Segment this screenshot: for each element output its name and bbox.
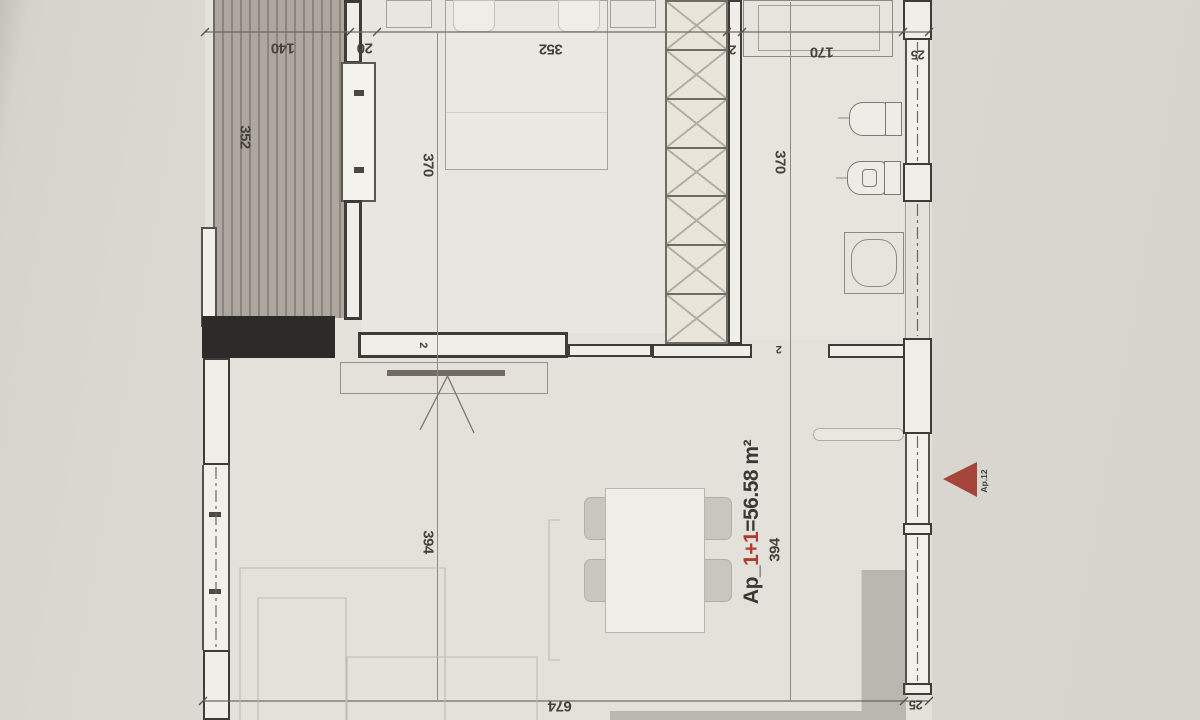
dim-label: 370 bbox=[420, 153, 437, 177]
fixture-lines bbox=[836, 118, 849, 178]
dim-label: 2 bbox=[417, 342, 429, 348]
door-swing-chevron bbox=[420, 376, 474, 433]
dimension-lines bbox=[203, 32, 930, 701]
dim-label: 352 bbox=[237, 125, 254, 149]
area-prefix: Ap_ bbox=[740, 566, 763, 604]
dim-label: 674 bbox=[548, 698, 572, 715]
dim-label: 352 bbox=[539, 41, 563, 58]
apartment-area-label: Ap_1+1=56.58 m² bbox=[740, 440, 764, 604]
dim-label: 394 bbox=[420, 530, 437, 554]
dim-label: 2 bbox=[730, 43, 737, 58]
area-rooms: 1+1 bbox=[740, 532, 763, 566]
sofa-outlines bbox=[240, 520, 560, 720]
dim-label: 140 bbox=[271, 40, 295, 57]
area-value: =56.58 m² bbox=[740, 440, 763, 532]
apartment-marker-label: Ap.12 bbox=[979, 469, 989, 492]
dim-label: 170 bbox=[810, 44, 834, 61]
dim-label: 2 bbox=[776, 343, 782, 355]
dim-label: 370 bbox=[772, 150, 789, 174]
dimension-ticks bbox=[199, 28, 933, 705]
apartment-marker-triangle bbox=[943, 462, 977, 497]
dim-label: 25 bbox=[911, 48, 924, 63]
reference-lines bbox=[438, 2, 791, 700]
dim-label: 394 bbox=[767, 538, 784, 562]
dim-label: 25 bbox=[909, 698, 922, 713]
dim-label: 20 bbox=[357, 40, 373, 57]
linework-overlay bbox=[0, 0, 1200, 720]
window-centerlines bbox=[216, 42, 918, 681]
